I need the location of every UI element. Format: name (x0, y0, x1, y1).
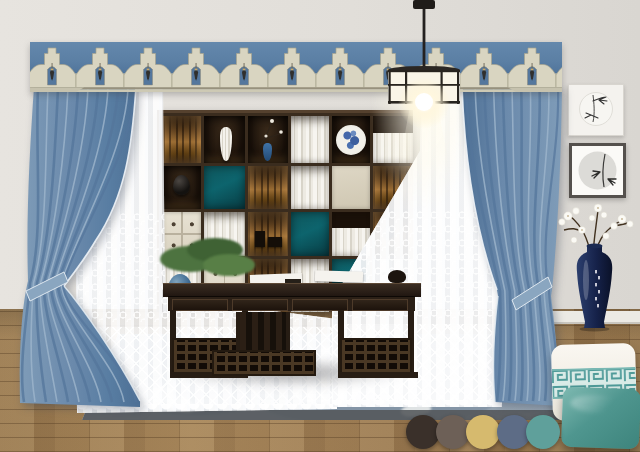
palette-swatch (526, 415, 560, 449)
palette-swatch (466, 415, 500, 449)
framed-ink-art-top (568, 84, 624, 136)
pendant-lamp (386, 0, 462, 175)
teapot-on-desk (388, 270, 406, 283)
shelf-books (291, 166, 329, 209)
desk-drawer (172, 299, 228, 311)
book-stack-on-desk (315, 270, 363, 282)
lamp-rod (423, 9, 426, 70)
blossom-twig (252, 117, 286, 147)
valance-pelmet (30, 42, 562, 92)
chair-back-slats (240, 312, 286, 350)
desk-lattice-shelf (340, 338, 412, 374)
curtain-left (16, 85, 150, 415)
floor-vase-with-blossoms (548, 198, 640, 334)
shelf-compartment (163, 116, 201, 163)
desk-drawer (352, 299, 408, 311)
black-jar (173, 175, 190, 195)
palette-swatch (406, 415, 440, 449)
palette-swatch (436, 415, 470, 449)
desk-tabletop (163, 283, 421, 297)
shelf-compartment (248, 166, 288, 209)
study-room-rendering (0, 0, 640, 452)
writing-desk-group (155, 238, 430, 383)
chair-footrest-lattice (212, 350, 316, 376)
framed-ink-art-bottom (569, 143, 626, 198)
shelf-teal-panel (204, 166, 245, 209)
shelf-cabinet-door (332, 166, 370, 209)
shelf-books (291, 116, 329, 163)
teal-satin-pillow (561, 387, 640, 450)
desk-bottom-rail (338, 372, 418, 378)
bonsai-foliage (203, 254, 255, 276)
desk-drawer-row (168, 296, 415, 311)
desk-drawer (232, 299, 288, 311)
porcelain-plate (336, 125, 366, 155)
lamp-canopy (413, 0, 435, 9)
